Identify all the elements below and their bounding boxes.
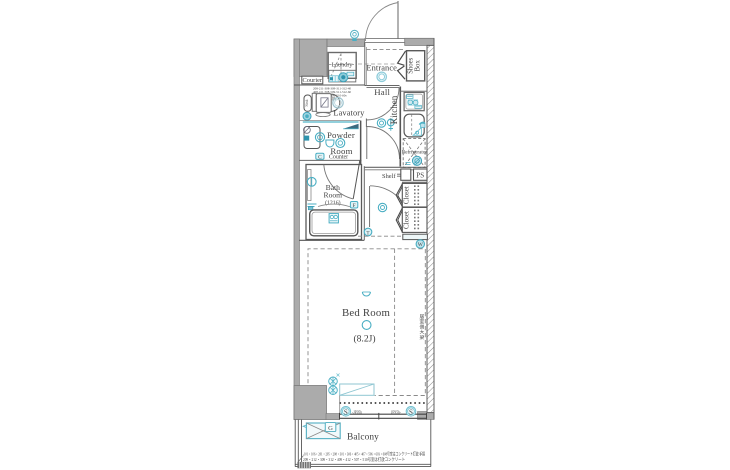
svg-text:Room: Room xyxy=(324,190,343,199)
svg-text:S: S xyxy=(344,408,348,416)
svg-text:Closet: Closet xyxy=(403,211,411,229)
svg-text:居室側大梁: 居室側大梁 xyxy=(419,314,424,341)
svg-text:Courier: Courier xyxy=(303,77,323,84)
svg-text:Hall: Hall xyxy=(374,87,390,97)
svg-text:(1216): (1216) xyxy=(325,199,341,206)
svg-text:Refrigerator: Refrigerator xyxy=(402,148,428,155)
svg-text:PS: PS xyxy=(416,172,424,180)
svg-text:Balcony: Balcony xyxy=(347,432,379,442)
svg-text:G: G xyxy=(328,425,333,432)
svg-text:C: C xyxy=(318,154,322,160)
svg-text:(8.2J): (8.2J) xyxy=(353,333,375,344)
svg-text:W: W xyxy=(418,242,424,248)
svg-text:Entrance: Entrance xyxy=(366,64,397,73)
svg-text:Kitchen: Kitchen xyxy=(389,95,399,124)
svg-text:Shelf: Shelf xyxy=(382,173,396,180)
svg-text:Lavatory: Lavatory xyxy=(333,108,365,117)
svg-text:Sink: Sink xyxy=(304,99,309,106)
svg-text:S: S xyxy=(409,408,413,416)
svg-text:JF95h-: JF95h- xyxy=(391,411,402,415)
svg-text:F: F xyxy=(353,203,356,209)
svg-text:Laundry: Laundry xyxy=(332,62,354,69)
svg-text:Closet: Closet xyxy=(403,186,411,204)
svg-text:-JF95h: -JF95h xyxy=(352,411,362,415)
svg-text:Bed Room: Bed Room xyxy=(342,307,390,319)
svg-text:Counter: Counter xyxy=(329,154,348,160)
svg-text:209・212・309・312・409・412・507・51: 209・212・309・312・409・412・507・510号室は打放コンクリ… xyxy=(303,456,405,463)
